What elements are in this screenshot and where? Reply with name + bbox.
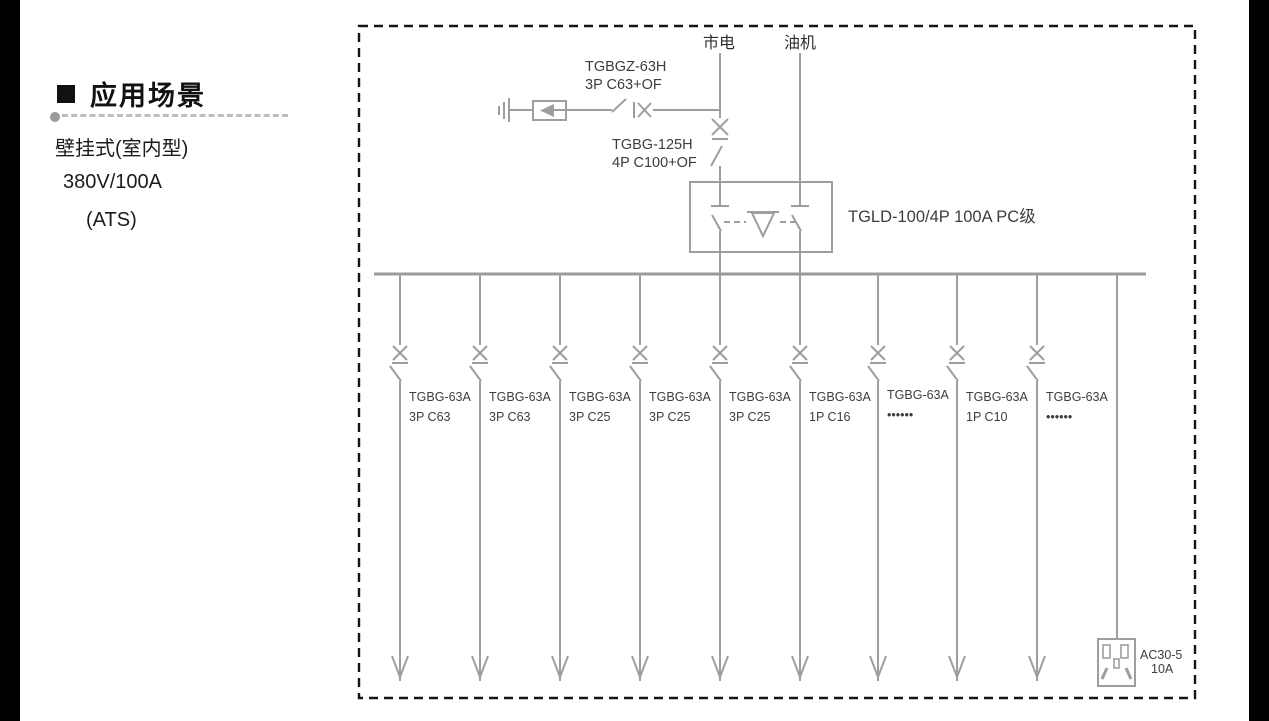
branch-breaker-blade-icon: [1027, 366, 1038, 381]
branch-model: TGBG-63A: [649, 390, 711, 404]
branch-breaker-contact-icon: [712, 346, 728, 363]
branch-breaker-contact-icon: [792, 346, 808, 363]
single-line-diagram: 市电 油机 TGBGZ-63H 3P C63+OF TGBG-125H 4P C…: [0, 0, 1269, 721]
spd-breaker-blade-icon: [612, 99, 626, 112]
branch-breaker-blade-icon: [947, 366, 958, 381]
ats-box: [690, 182, 832, 252]
socket-model: AC30-5: [1140, 648, 1182, 662]
branch-model: TGBG-63A: [569, 390, 631, 404]
main-breaker-contact-icon: [712, 119, 728, 139]
feeder-branch: TGBG-63A 3P C25: [630, 274, 711, 681]
socket-slot-icon: [1114, 659, 1119, 668]
branch-breaker-blade-icon: [390, 366, 401, 381]
branch-breaker-blade-icon: [710, 366, 721, 381]
branch-breaker-contact-icon: [1029, 346, 1045, 363]
feeder-branch: TGBG-63A 3P C25: [710, 274, 791, 681]
feeder-branch: TGBG-63A ••••••: [868, 274, 949, 681]
feeder-branch: TGBG-63A 3P C63: [470, 274, 551, 681]
branch-breaker-contact-icon: [472, 346, 488, 363]
socket-slot-icon: [1121, 645, 1128, 658]
branch-model: TGBG-63A: [409, 390, 471, 404]
branch-model: TGBG-63A: [966, 390, 1028, 404]
branch-breaker-contact-icon: [392, 346, 408, 363]
mains-label: 市电: [703, 34, 735, 52]
branch-spec: 3P C63: [489, 410, 531, 424]
branch-breaker-blade-icon: [790, 366, 801, 381]
branch-breaker-blade-icon: [470, 366, 481, 381]
feeder-branch: TGBG-63A ••••••: [1027, 274, 1108, 681]
branch-breaker-blade-icon: [550, 366, 561, 381]
branch-breaker-contact-icon: [552, 346, 568, 363]
main-breaker-blade-icon: [711, 146, 722, 166]
feeder-branch: TGBG-63A 1P C10: [947, 274, 1028, 681]
branch-spec: ••••••: [1046, 410, 1072, 424]
feeder-branch: TGBG-63A 3P C63: [390, 274, 471, 681]
spd-breaker-spec: 3P C63+OF: [585, 77, 662, 93]
branch-model: TGBG-63A: [729, 390, 791, 404]
branch-breaker-blade-icon: [868, 366, 879, 381]
branch-spec: 3P C25: [649, 410, 691, 424]
feeder-branch: TGBG-63A 1P C16: [790, 274, 871, 681]
branch-model: TGBG-63A: [809, 390, 871, 404]
ats-switch: TGLD-100/4P 100A PC级: [690, 182, 1036, 274]
main-breaker-spec: 4P C100+OF: [612, 155, 697, 171]
branch-spec: ••••••: [887, 408, 913, 422]
ground-icon: [499, 98, 533, 122]
branch-breaker-contact-icon: [632, 346, 648, 363]
branch-breaker-contact-icon: [870, 346, 886, 363]
ats-left-contact-icon: [711, 182, 729, 206]
ats-right-contact-icon: [791, 182, 809, 206]
branch-spec: 1P C10: [966, 410, 1008, 424]
feeder-branch: TGBG-63A 3P C25: [550, 274, 631, 681]
branch-model: TGBG-63A: [887, 388, 949, 402]
branch-spec: 3P C25: [569, 410, 611, 424]
ats-interlock-icon: [747, 212, 779, 236]
generator-label: 油机: [784, 34, 816, 52]
main-breaker-model: TGBG-125H: [612, 137, 693, 153]
branch-spec: 3P C25: [729, 410, 771, 424]
spd-branch: TGBGZ-63H 3P C63+OF: [499, 59, 720, 122]
branch-breaker-contact-icon: [949, 346, 965, 363]
socket-slot-icon: [1103, 645, 1110, 658]
spd-breaker-contact-icon: [634, 102, 651, 118]
spd-arrow-icon: [540, 104, 554, 117]
socket-rating: 10A: [1151, 662, 1174, 676]
socket-branch: AC30-5 10A: [1098, 274, 1182, 686]
ats-label: TGLD-100/4P 100A PC级: [848, 207, 1036, 226]
branch-spec: 3P C63: [409, 410, 451, 424]
branch-spec: 1P C16: [809, 410, 851, 424]
branch-model: TGBG-63A: [1046, 390, 1108, 404]
socket-angled-slots-icon: [1102, 668, 1131, 679]
ats-left-blade-icon: [712, 215, 721, 231]
branch-breaker-blade-icon: [630, 366, 641, 381]
branch-model: TGBG-63A: [489, 390, 551, 404]
spd-breaker-model: TGBGZ-63H: [585, 59, 666, 75]
